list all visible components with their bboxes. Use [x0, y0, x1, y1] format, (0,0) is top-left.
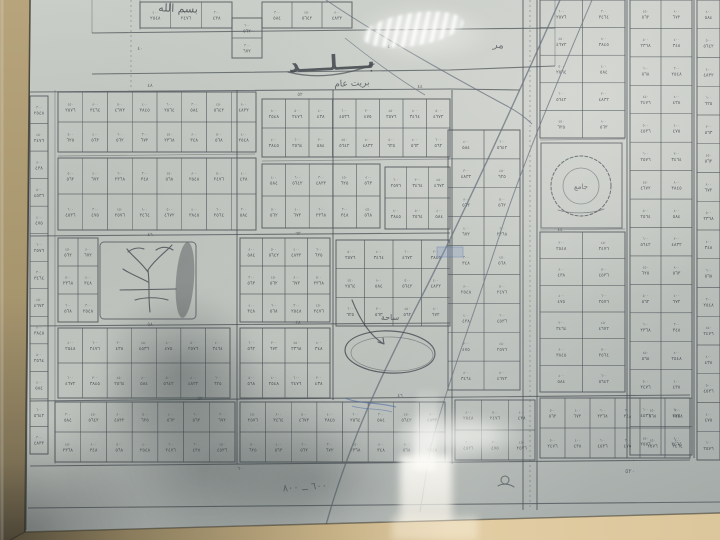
- frame-bottom-rail: [0, 513, 720, 540]
- framed-map-photo: ٤٠٠٢٥٤٨٦٠٠٢٤٧٦٣٠٠٤٣٨٦٠٠٥٦٢٣٠٠٦٧٢٣٠٠٥٨٤٤٥…: [0, 0, 720, 540]
- frame-light-reflection: [392, 516, 478, 540]
- picture-frame: [0, 0, 720, 540]
